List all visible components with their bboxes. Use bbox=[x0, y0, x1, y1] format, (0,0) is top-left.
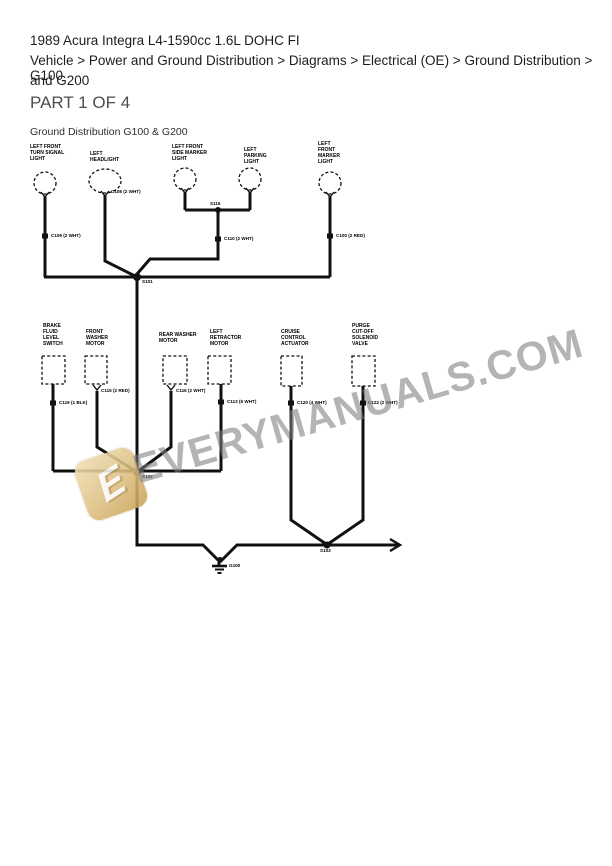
logo-e-icon: E bbox=[90, 457, 133, 512]
connector-label: C100 (2 RED) bbox=[336, 233, 365, 238]
component-box-symbols bbox=[42, 356, 375, 386]
component-label: LEFT HEADLIGHT bbox=[90, 152, 119, 164]
component-label: LEFT PARKING LIGHT bbox=[244, 148, 267, 166]
component-label: CRUISE CONTROL ACTUATOR bbox=[281, 330, 309, 348]
component-label: LEFT FRONT TURN SIGNAL LIGHT bbox=[30, 145, 64, 163]
manual-page: 1989 Acura Integra L4-1590cc 1.6L DOHC F… bbox=[0, 0, 612, 866]
component-label: LEFT FRONT SIDE MARKER LIGHT bbox=[172, 145, 207, 163]
vehicle-title: 1989 Acura Integra L4-1590cc 1.6L DOHC F… bbox=[30, 33, 300, 48]
component-label: BRAKE FLUID LEVEL SWITCH bbox=[43, 324, 63, 348]
part-label: PART 1 OF 4 bbox=[30, 93, 130, 113]
connector-label: C116 (2 WHT) bbox=[176, 388, 205, 393]
connector-label: C109 (2 WHT) bbox=[51, 233, 81, 238]
connector-label: C115 (2 RED) bbox=[101, 388, 130, 393]
light-symbols bbox=[34, 168, 341, 194]
connector-label: C113 (6 WHT) bbox=[227, 399, 256, 404]
breadcrumb: Vehicle > Power and Ground Distribution … bbox=[30, 53, 612, 83]
ground-symbol bbox=[212, 566, 227, 573]
connector-label: C119 (1 BLK) bbox=[59, 400, 87, 405]
splice-dots bbox=[133, 207, 331, 563]
ground-label: G100 bbox=[229, 563, 240, 568]
arrow-right-icon bbox=[390, 539, 400, 551]
component-label: REAR WASHER MOTOR bbox=[159, 333, 197, 345]
splice-label: S103 bbox=[320, 548, 331, 553]
connector-marks bbox=[42, 234, 366, 406]
component-label: LEFT RETRACTOR MOTOR bbox=[210, 330, 241, 348]
connector-label: C108 (2 WHT) bbox=[111, 189, 141, 194]
diagram-title: Ground Distribution G100 & G200 bbox=[30, 126, 188, 138]
splice-label: S101 bbox=[142, 279, 153, 284]
connector-label: C110 (2 WHT) bbox=[224, 236, 253, 241]
component-label: PURGE CUT-OFF SOLENOID VALVE bbox=[352, 324, 378, 348]
component-label: LEFT FRONT MARKER LIGHT bbox=[318, 142, 340, 166]
splice-label: S115 bbox=[210, 201, 220, 206]
breadcrumb-wrap: and G200 bbox=[30, 73, 89, 88]
component-label: FRONT WASHER MOTOR bbox=[86, 330, 108, 348]
bulb-connector-notches bbox=[41, 188, 334, 390]
